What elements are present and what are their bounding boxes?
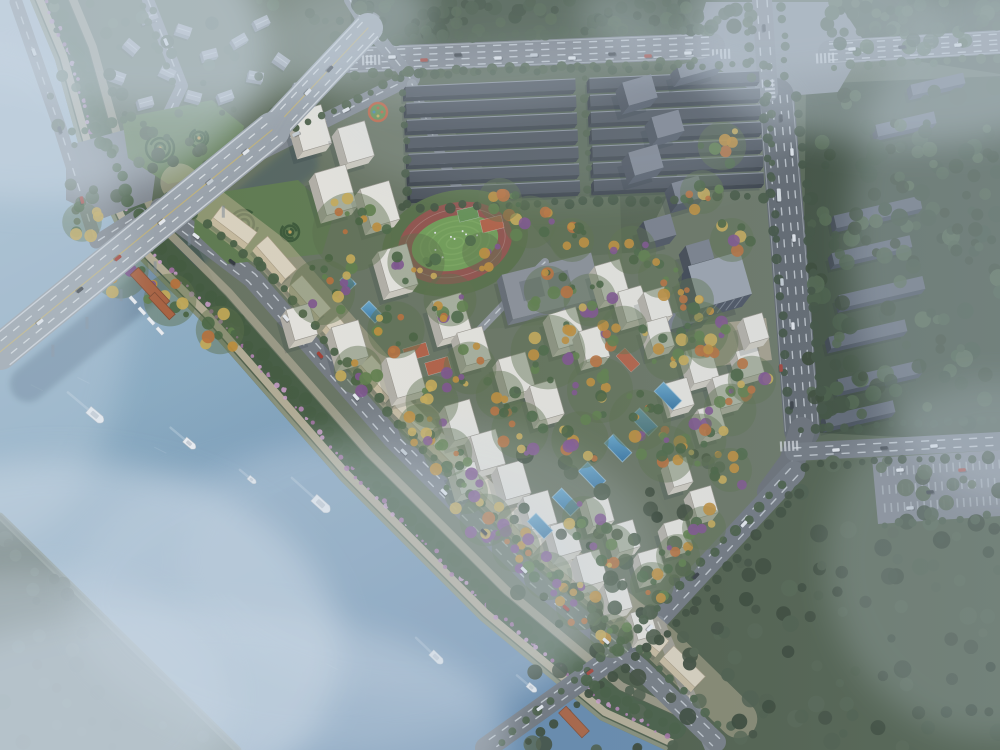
aerial-image xyxy=(0,0,1000,750)
atmosphere xyxy=(0,0,1000,750)
aerial-masterplan-render xyxy=(0,0,1000,750)
fog-patch xyxy=(180,420,660,700)
